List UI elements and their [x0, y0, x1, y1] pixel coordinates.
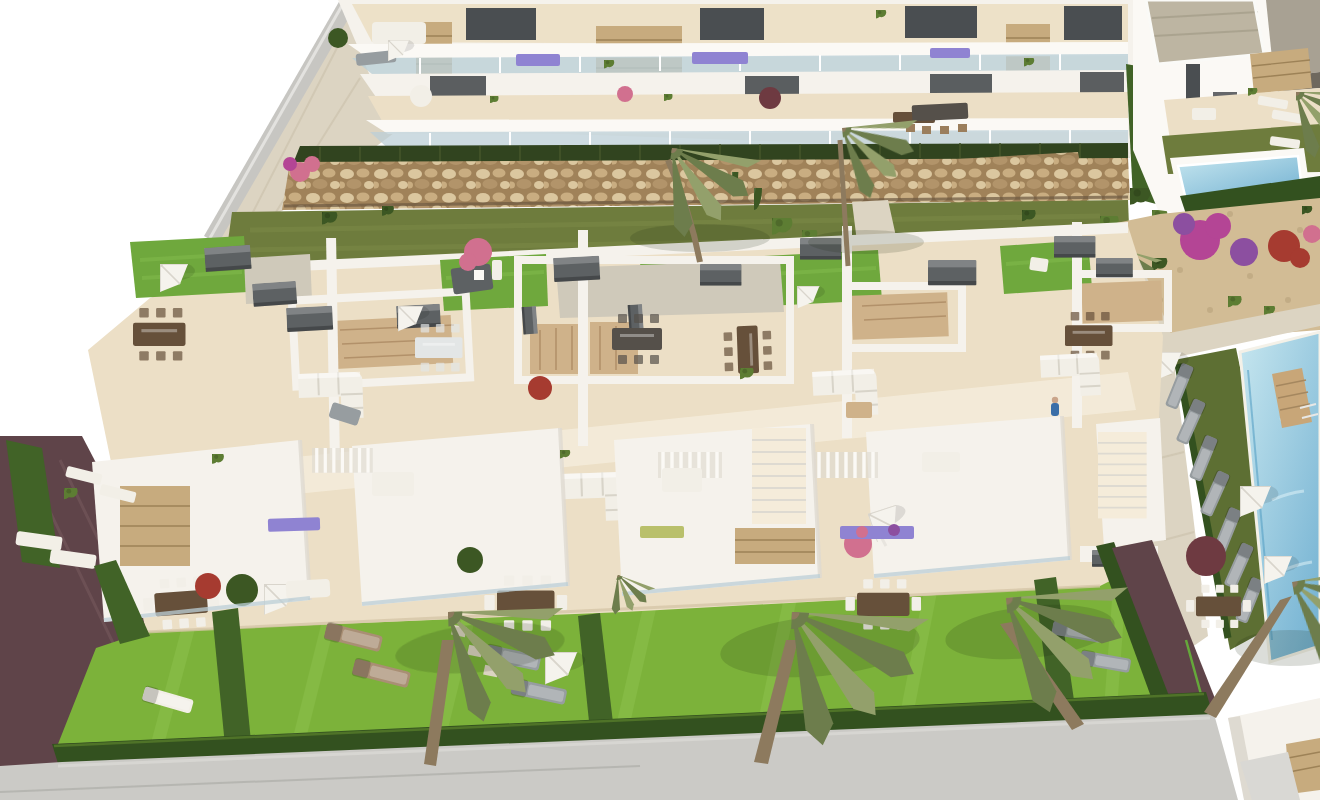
- dining-set: [133, 308, 186, 361]
- ball-tree: [226, 574, 258, 606]
- lavender-planter: [692, 52, 748, 64]
- ball-tree: [457, 547, 483, 573]
- white-daybed: [662, 468, 702, 492]
- louvered-pergola: [312, 448, 373, 473]
- dining-set: [612, 314, 662, 364]
- render-canvas: [0, 0, 1320, 800]
- white-bench: [286, 579, 331, 599]
- white-chair: [1029, 257, 1049, 272]
- architectural-render: [0, 0, 1320, 800]
- villa-table: [1192, 108, 1216, 120]
- staircase: [752, 428, 806, 524]
- stone-feature-wall: [735, 528, 815, 564]
- pink-plant: [617, 86, 633, 102]
- house-volume: [352, 428, 568, 606]
- person: [1051, 397, 1059, 416]
- villa-stone-wall: [1250, 48, 1312, 94]
- dining-set: [415, 324, 463, 372]
- yellow-planter: [640, 526, 684, 538]
- maroon-shrub: [1186, 536, 1226, 576]
- coffee-table: [846, 402, 872, 418]
- dining-table: [912, 103, 969, 122]
- dining-set: [1065, 312, 1113, 360]
- louvered-pergola: [814, 452, 878, 478]
- red-flower-bush: [528, 376, 552, 400]
- round-table: [410, 85, 432, 107]
- house-volume: [866, 416, 1070, 578]
- staircase: [1098, 432, 1147, 518]
- maroon-shrub: [759, 87, 781, 109]
- villas-top-right: [1133, 0, 1320, 232]
- white-daybed: [922, 452, 960, 472]
- red-bougainvillea: [195, 573, 221, 599]
- lavender-planter: [516, 54, 560, 66]
- lavender-planter: [840, 526, 914, 539]
- white-daybed: [372, 472, 414, 496]
- dining-set: [723, 325, 772, 374]
- lavender-planter: [930, 48, 970, 58]
- float-mat: [492, 260, 502, 280]
- lavender-planter: [268, 517, 320, 532]
